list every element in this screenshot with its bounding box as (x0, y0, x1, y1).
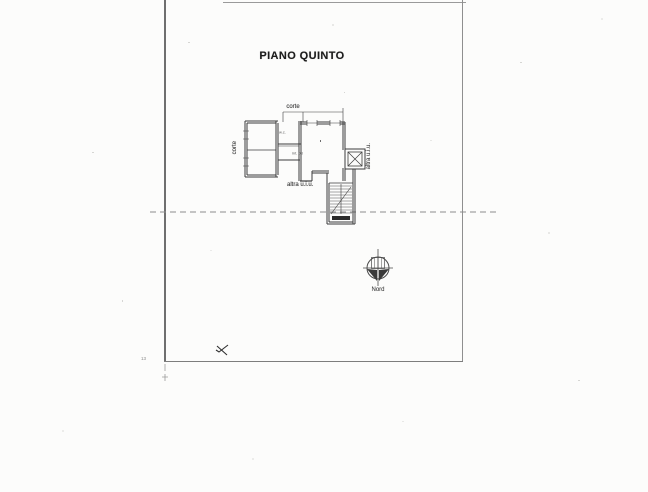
unit-number-label: int. 08 (292, 152, 303, 156)
staircase (327, 169, 355, 224)
wc-room-label: w.c. (279, 131, 286, 135)
other-unit-label-right: altra u.i.u. (366, 143, 372, 169)
other-unit-label-bottom: altra u.i.u. (287, 182, 313, 188)
north-label: Nord (366, 287, 390, 293)
courtyard-label-top: corte (282, 104, 304, 110)
margin-page-mark: 13 (141, 357, 146, 362)
north-compass-icon (363, 249, 393, 286)
floor-plan-drawing (0, 0, 648, 492)
margin-tick-marks (162, 364, 168, 381)
courtyard-label-left: corte (232, 141, 238, 154)
apartment-walls (243, 108, 345, 181)
stair-landing-mark (332, 216, 350, 220)
elevator-shaft-icon (345, 149, 365, 169)
scanned-floor-plan-page: PIANO QUINTO corte corte w.c. int. 08 al… (0, 0, 648, 492)
x-mark-annotation (216, 345, 228, 355)
floor-title: PIANO QUINTO (252, 50, 352, 62)
